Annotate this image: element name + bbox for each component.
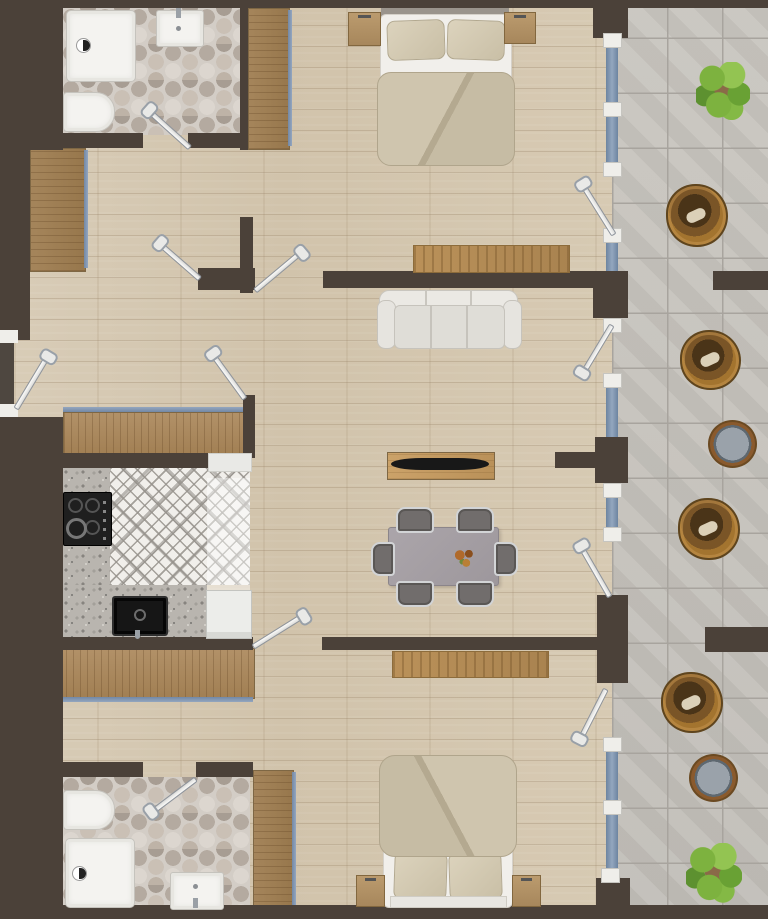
kitchen-top-white-unit	[208, 453, 252, 472]
wall-bathroom-top-bottom-right	[188, 133, 243, 148]
glass-panel-7	[606, 813, 618, 868]
bed-top-pillow-left	[386, 19, 445, 61]
washbasin-top-drain	[176, 26, 181, 31]
wicker-chair	[680, 330, 741, 390]
hallway-closet-glass	[63, 407, 243, 412]
window-mullion	[603, 483, 622, 498]
glass-panel-5	[606, 496, 618, 527]
bedroom-bottom-closet	[30, 648, 255, 699]
glass-panel-3	[606, 241, 618, 271]
dressing-wardrobe-glass	[84, 150, 88, 268]
glass-panel-4	[606, 386, 618, 437]
wall-terrace-right-stub-a	[713, 271, 768, 290]
bed-bottom-pillow-right	[448, 851, 503, 901]
window-mullion	[601, 868, 620, 883]
glass-panel-2	[606, 115, 618, 162]
floor-plan	[0, 0, 768, 919]
bedroom-top-wardrobe-glass	[288, 10, 292, 146]
kitchen-sink-drain	[134, 609, 146, 621]
tv	[391, 458, 489, 470]
washbasin-top-faucet	[176, 8, 181, 18]
nightstand	[512, 875, 541, 907]
wicker-chair	[661, 672, 723, 733]
bed-bottom-duvet	[379, 755, 517, 857]
glass-panel-6	[606, 750, 618, 800]
dining-chair	[456, 507, 494, 533]
wall-terrace-right-stub-b	[705, 627, 768, 652]
window-mullion	[603, 800, 622, 815]
bed-top-duvet	[377, 72, 515, 166]
washbasin-bottom-faucet	[193, 898, 198, 908]
kitchen-sink-faucet	[135, 630, 140, 639]
dining-chair	[396, 581, 434, 607]
window-mullion	[603, 527, 622, 542]
bedroom-top-wardrobe	[248, 8, 290, 150]
wall-terrace-stub-5	[596, 878, 630, 919]
wall-top	[0, 0, 768, 8]
bed-bottom-pillow-left	[393, 851, 448, 901]
dining-chair	[494, 542, 518, 576]
wall-bedroom-top-living	[323, 271, 595, 288]
bedroom-bottom-rug	[392, 651, 549, 678]
bed-bottom-headboard	[390, 896, 507, 908]
entrance-frame-top	[0, 330, 18, 343]
wall-hall-kitchen-vertical	[243, 395, 255, 458]
stove-burner	[68, 498, 83, 513]
bedroom-top-rug	[413, 245, 570, 273]
nightstand	[348, 12, 381, 46]
nightstand	[504, 12, 536, 44]
wicker-chair	[678, 498, 740, 560]
sofa-seat-cushions	[394, 305, 505, 349]
fridge-cabinet	[207, 478, 250, 592]
wall-kitchen-top	[63, 453, 208, 468]
wall-left-lower	[0, 417, 63, 919]
wall-terrace-stub-3	[595, 437, 628, 483]
wall-terrace-stub-4	[597, 595, 628, 683]
wall-bathroom-bottom-top-right	[196, 762, 253, 777]
stove-burner-large	[66, 518, 87, 539]
toilet-bottom	[63, 790, 115, 830]
table-flowers	[452, 546, 478, 572]
dining-chair	[371, 542, 395, 576]
terrace-side-table	[689, 754, 738, 802]
stove-knobs	[103, 498, 106, 540]
dining-chair	[456, 581, 494, 607]
window-mullion	[603, 737, 622, 752]
wall-bathroom-bottom-top-left	[55, 762, 143, 777]
window-mullion	[603, 162, 622, 177]
wall-top-left-block	[0, 0, 63, 150]
dishwasher	[206, 590, 252, 639]
stove-burner	[85, 520, 100, 535]
wicker-chair	[666, 184, 728, 247]
wall-terrace-stub-2	[593, 271, 628, 318]
dining-chair	[396, 507, 434, 533]
bathroom-bottom-wardrobe-glass	[292, 772, 296, 906]
bed-top-pillow-right	[446, 19, 505, 61]
sofa	[377, 288, 520, 349]
window-mullion	[603, 373, 622, 388]
bedroom-bottom-closet-glass	[30, 697, 253, 702]
plant	[696, 62, 750, 120]
window-mullion	[603, 33, 622, 48]
wall-living-bedroom-bottom	[322, 637, 598, 650]
hallway-closet	[63, 412, 245, 457]
wall-door-block	[198, 268, 255, 290]
wall-left-upper	[0, 150, 30, 340]
sofa-arm-right	[503, 300, 522, 349]
wall-bathroom-top-bottom-left	[55, 133, 143, 148]
glass-panel-1	[606, 46, 618, 104]
dressing-wardrobe	[30, 148, 86, 272]
washbasin-bottom-drain	[193, 884, 198, 889]
toilet-top	[63, 92, 115, 132]
stove-burner	[85, 498, 100, 513]
bathroom-bottom-wardrobe	[253, 770, 294, 910]
dining-table	[388, 527, 499, 586]
wall-terrace-stub-3-arm	[555, 452, 597, 468]
wall-bathroom-top-right	[240, 0, 248, 150]
nightstand	[356, 875, 385, 907]
terrace-side-table	[708, 420, 757, 468]
plant	[686, 843, 742, 903]
window-mullion	[603, 102, 622, 117]
